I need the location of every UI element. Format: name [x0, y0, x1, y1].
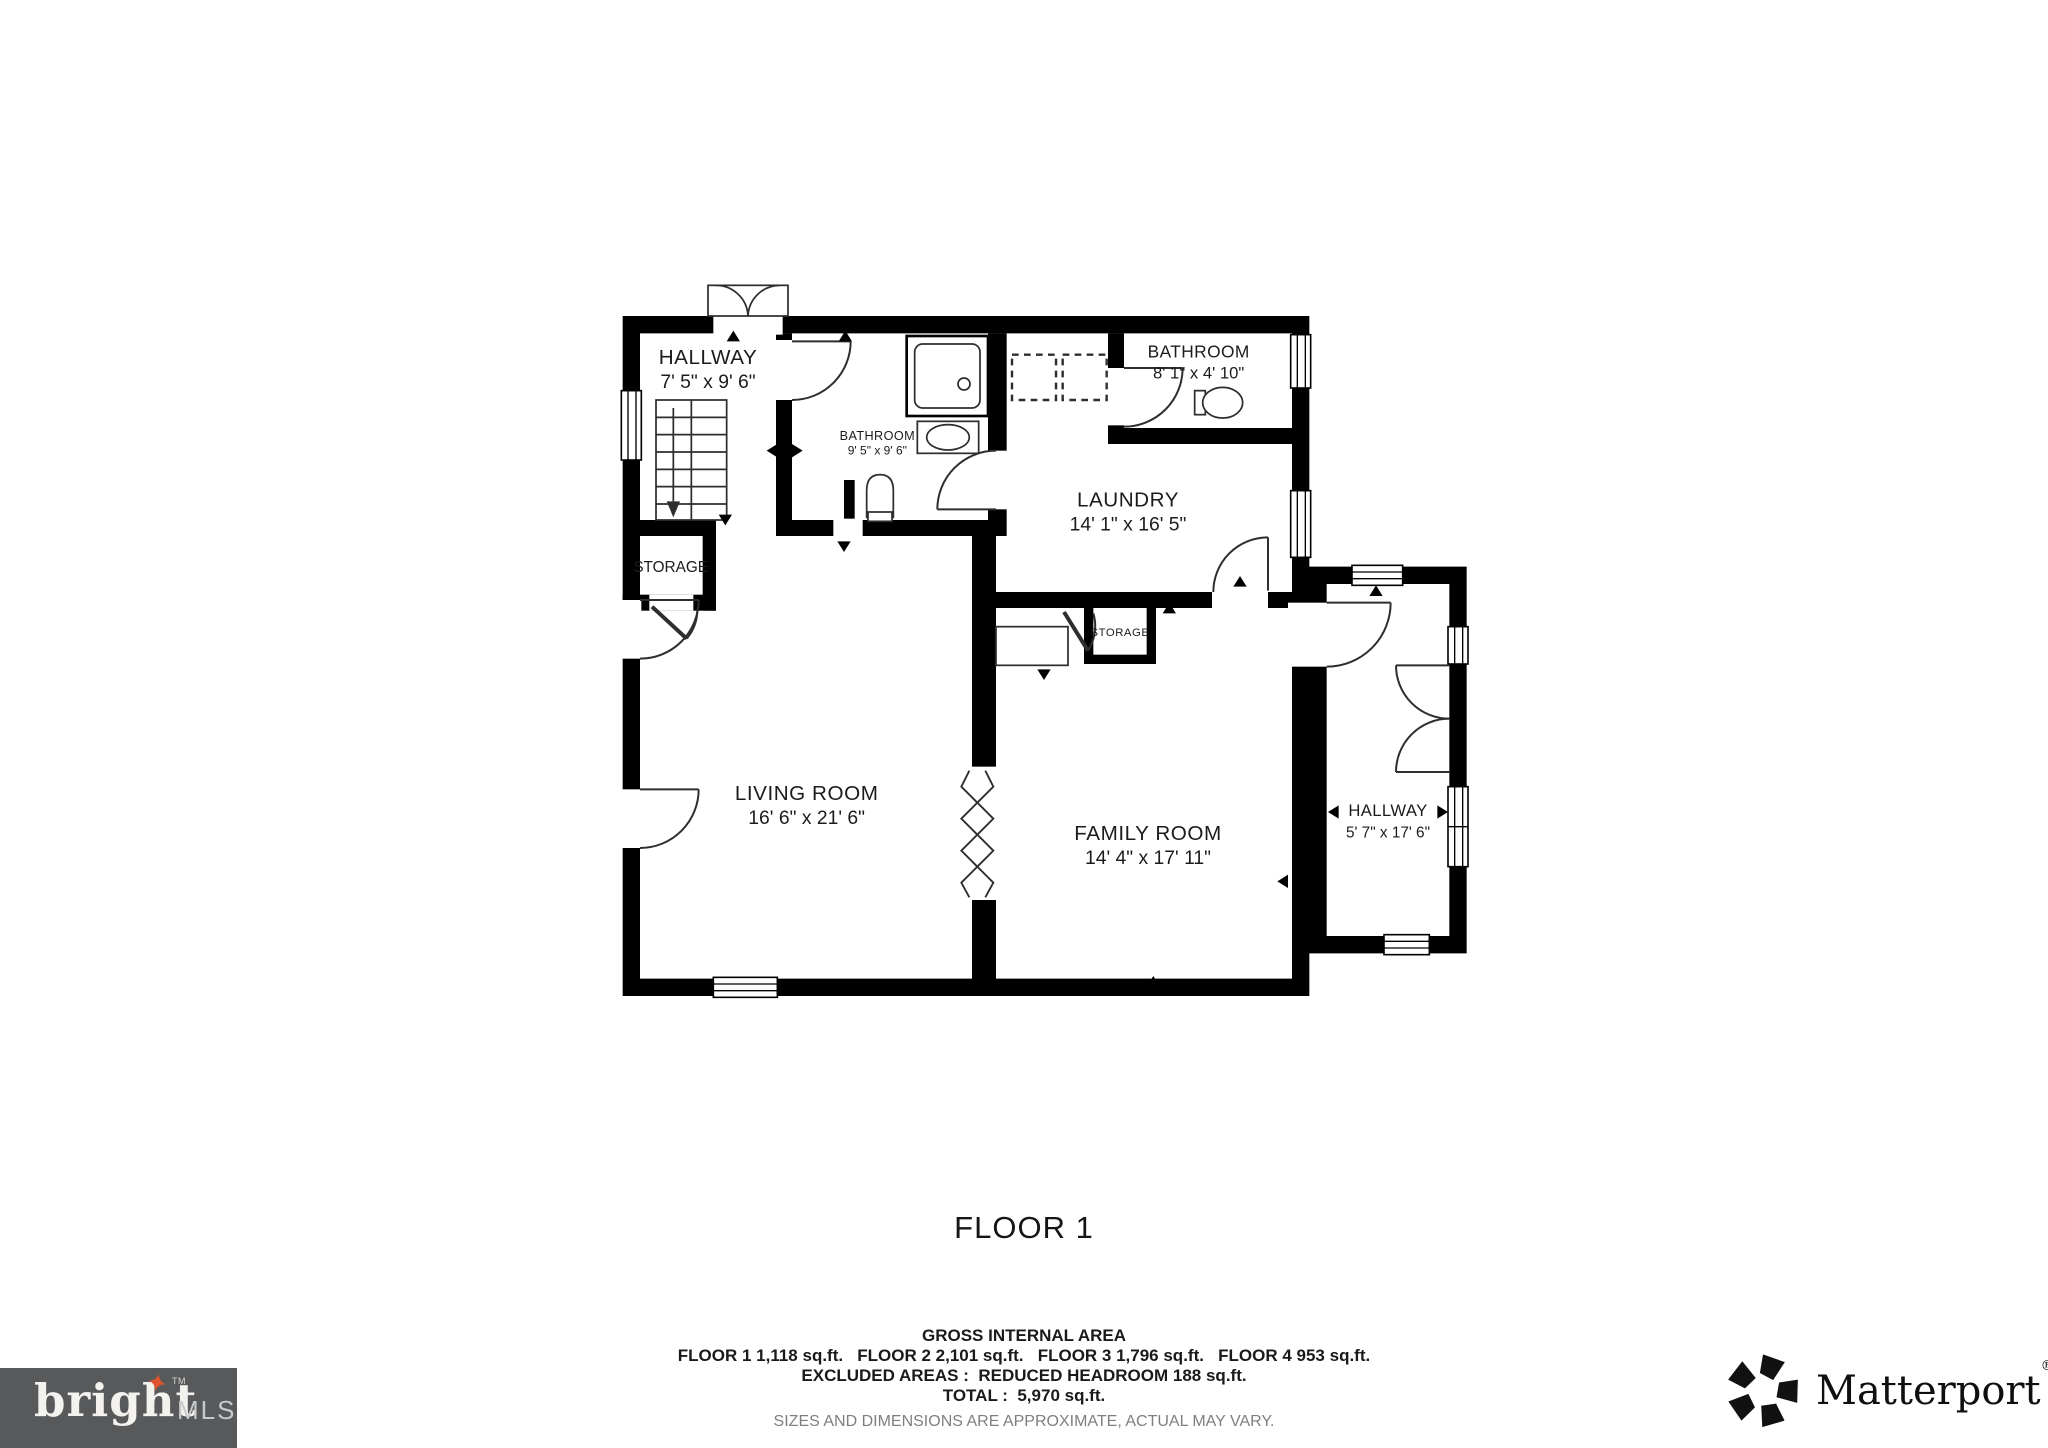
room-dims-bathroom-1: 9' 5" x 9' 6"	[848, 444, 907, 458]
room-dims-bathroom-2: 8' 1" x 4' 10"	[1153, 364, 1244, 383]
floor-title: FLOOR 1	[0, 1210, 2048, 1246]
room-dims-living-room: 16' 6" x 21' 6"	[748, 808, 865, 829]
bathroom-sink	[917, 421, 978, 453]
bright-tm-mark: TM	[172, 1376, 186, 1386]
entry-double-door	[708, 285, 788, 316]
room-label-storage-2: STORAGE	[1091, 627, 1150, 639]
room-label-bathroom-1: BATHROOM	[840, 429, 915, 443]
matterport-logo: Matterport ®	[1724, 1352, 2048, 1430]
bright-mls-logo: bright ✦ TM MLS	[0, 1368, 237, 1448]
room-dims-laundry: 14' 1" x 16' 5"	[1070, 515, 1187, 536]
fixtures	[867, 336, 1243, 897]
room-dims-family-room: 14' 4" x 17' 11"	[1085, 848, 1211, 869]
toilet-bathroom-2	[1195, 387, 1243, 418]
room-label-laundry: LAUNDRY	[1077, 489, 1179, 512]
floor-plan-page: HALLWAY 7' 5" x 9' 6" BATHROOM 9' 5" x 9…	[0, 0, 2048, 1448]
room-label-bathroom-2: BATHROOM	[1148, 341, 1250, 361]
room-label-hallway-2: HALLWAY	[1348, 801, 1427, 820]
staircase	[656, 400, 727, 520]
closet-counter	[996, 627, 1068, 666]
room-dims-hallway-2: 5' 7" x 17' 6"	[1346, 824, 1430, 841]
shower	[907, 336, 988, 416]
room-label-living-room: LIVING ROOM	[735, 782, 879, 805]
matterport-wordmark: Matterport	[1816, 1368, 2041, 1414]
direction-markers	[719, 331, 1448, 987]
matterport-pinwheel-icon	[1724, 1352, 1802, 1430]
laundry-appliances-dashed	[1012, 355, 1107, 400]
matterport-registered-mark: ®	[2041, 1358, 2048, 1374]
room-label-hallway-1: HALLWAY	[659, 346, 758, 369]
toilet-bathroom-1	[867, 475, 894, 522]
room-dims-hallway-1: 7' 5" x 9' 6"	[660, 372, 755, 393]
bright-mls-text: MLS	[177, 1395, 236, 1426]
gross-internal-area-heading: GROSS INTERNAL AREA	[0, 1326, 2048, 1346]
room-label-family-room: FAMILY ROOM	[1074, 822, 1221, 845]
room-label-storage-1: STORAGE	[633, 559, 708, 576]
